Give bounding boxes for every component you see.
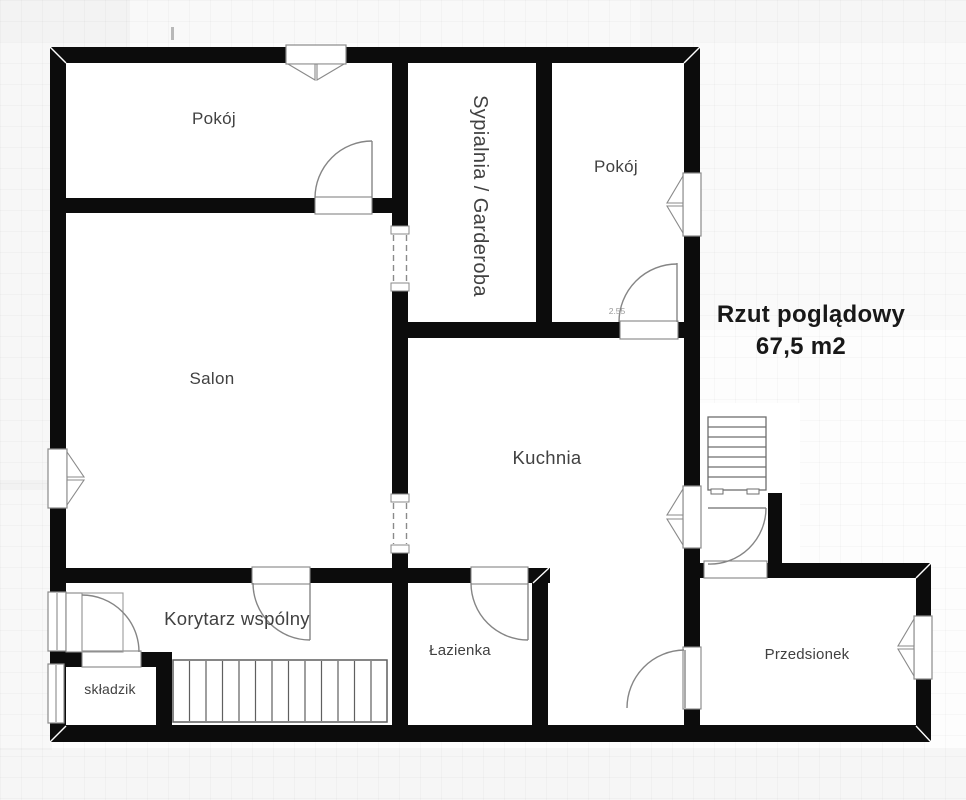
wall-segment (156, 652, 172, 725)
room-label-pokoj-tl: Pokój (192, 109, 236, 128)
window-skladzik (48, 664, 64, 723)
room-label-korytarz: Korytarz wspólny (164, 608, 310, 629)
room-label-skladzik: składzik (84, 681, 136, 697)
wall-segment (50, 725, 931, 742)
plan-title: Rzut poglądowy (717, 301, 906, 328)
window-korytarz (48, 592, 66, 651)
wall-segment (536, 63, 552, 330)
floor-main (50, 47, 700, 742)
wall-segment (50, 47, 700, 63)
wall-segment (768, 493, 782, 563)
plan-area: 67,5 m2 (756, 333, 846, 360)
room-label-salon: Salon (190, 369, 235, 388)
wall-segment (684, 47, 700, 725)
opening-salon-sypialnia (391, 226, 409, 291)
stairs-entrance (708, 417, 766, 494)
room-label-sypialnia: Sypialnia / Garderoba (469, 95, 491, 297)
room-label-pokoj-tr: Pokój (594, 157, 638, 176)
wall-segment (392, 63, 408, 725)
stairs-korytarz (173, 660, 387, 722)
opening-salon-kuchnia (391, 494, 409, 553)
plan-title-block: Rzut poglądowy 67,5 m2 (717, 301, 906, 360)
scan-artifact (171, 27, 174, 40)
wall-segment (532, 583, 548, 725)
room-label-kuchnia: Kuchnia (513, 447, 582, 468)
room-label-przedsionek: Przedsionek (765, 646, 850, 663)
room-label-lazienka: Łazienka (429, 642, 491, 659)
floor-plan: Pokój Sypialnia / Garderoba Pokój Salon … (0, 0, 966, 800)
dimension-label: 2.55 (609, 306, 626, 316)
